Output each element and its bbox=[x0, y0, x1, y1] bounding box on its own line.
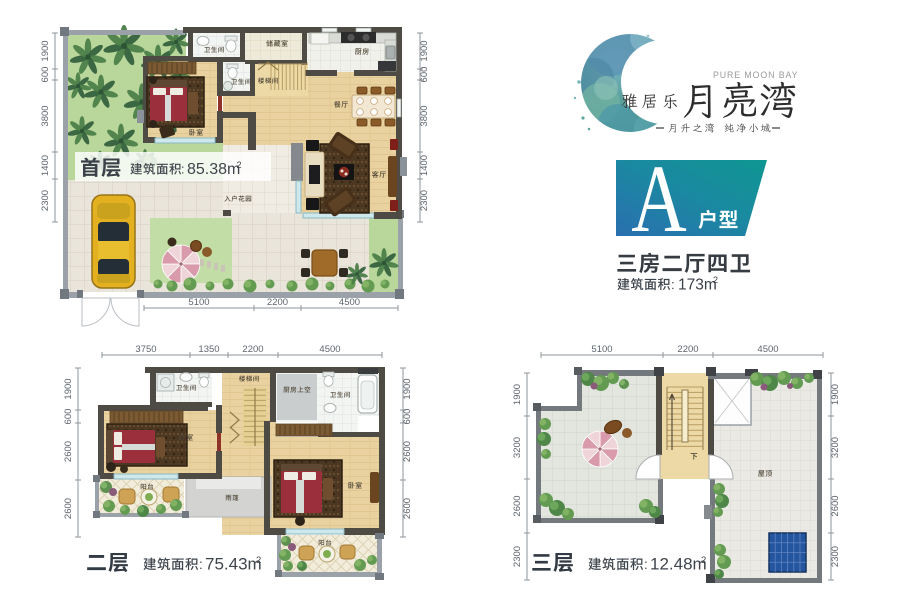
svg-text:2200: 2200 bbox=[677, 344, 698, 355]
svg-text:600: 600 bbox=[419, 67, 430, 83]
svg-text::: : bbox=[181, 163, 184, 177]
svg-text:2300: 2300 bbox=[40, 190, 51, 211]
svg-text:600: 600 bbox=[402, 409, 413, 425]
svg-text:2200: 2200 bbox=[267, 297, 288, 308]
svg-text:2: 2 bbox=[701, 555, 706, 566]
svg-text:5100: 5100 bbox=[591, 344, 612, 355]
svg-text:2300: 2300 bbox=[419, 190, 430, 211]
svg-text:2600: 2600 bbox=[63, 498, 74, 519]
svg-text:2600: 2600 bbox=[402, 498, 413, 519]
svg-text:2600: 2600 bbox=[830, 495, 841, 516]
svg-text:1900: 1900 bbox=[419, 40, 430, 61]
svg-text:2300: 2300 bbox=[512, 546, 523, 567]
svg-text:2300: 2300 bbox=[830, 546, 841, 567]
svg-text:4500: 4500 bbox=[339, 297, 360, 308]
svg-text:2: 2 bbox=[713, 275, 718, 285]
svg-text:1900: 1900 bbox=[40, 40, 51, 61]
svg-text:2600: 2600 bbox=[512, 495, 523, 516]
svg-text:1900: 1900 bbox=[402, 378, 413, 399]
svg-text:4500: 4500 bbox=[319, 344, 340, 355]
svg-text:85.38m: 85.38m bbox=[187, 161, 240, 178]
svg-text:12.48m: 12.48m bbox=[650, 555, 707, 574]
svg-text:5100: 5100 bbox=[188, 297, 209, 308]
svg-text::: : bbox=[671, 277, 675, 292]
svg-text:2600: 2600 bbox=[402, 441, 413, 462]
svg-text:1400: 1400 bbox=[419, 155, 430, 176]
svg-text:3200: 3200 bbox=[512, 437, 523, 458]
svg-text:1350: 1350 bbox=[198, 344, 219, 355]
svg-text:2: 2 bbox=[256, 555, 261, 566]
svg-text:2: 2 bbox=[237, 160, 242, 170]
svg-text:3750: 3750 bbox=[135, 344, 156, 355]
svg-text:4500: 4500 bbox=[757, 344, 778, 355]
svg-text::: : bbox=[199, 557, 203, 572]
svg-text:3800: 3800 bbox=[419, 105, 430, 126]
svg-text:2200: 2200 bbox=[242, 344, 263, 355]
svg-text:1900: 1900 bbox=[830, 384, 841, 405]
svg-text:3200: 3200 bbox=[830, 437, 841, 458]
svg-text:3800: 3800 bbox=[40, 105, 51, 126]
svg-text:600: 600 bbox=[40, 67, 51, 83]
svg-text:173m: 173m bbox=[678, 277, 717, 294]
svg-text:1400: 1400 bbox=[40, 155, 51, 176]
svg-text:1900: 1900 bbox=[63, 378, 74, 399]
svg-text:75.43m: 75.43m bbox=[205, 555, 262, 574]
svg-text::: : bbox=[644, 557, 648, 572]
svg-text:2600: 2600 bbox=[63, 441, 74, 462]
svg-text:600: 600 bbox=[63, 409, 74, 425]
svg-text:A: A bbox=[631, 146, 687, 252]
svg-text:1900: 1900 bbox=[512, 384, 523, 405]
svg-text:PURE MOON BAY: PURE MOON BAY bbox=[713, 70, 798, 80]
